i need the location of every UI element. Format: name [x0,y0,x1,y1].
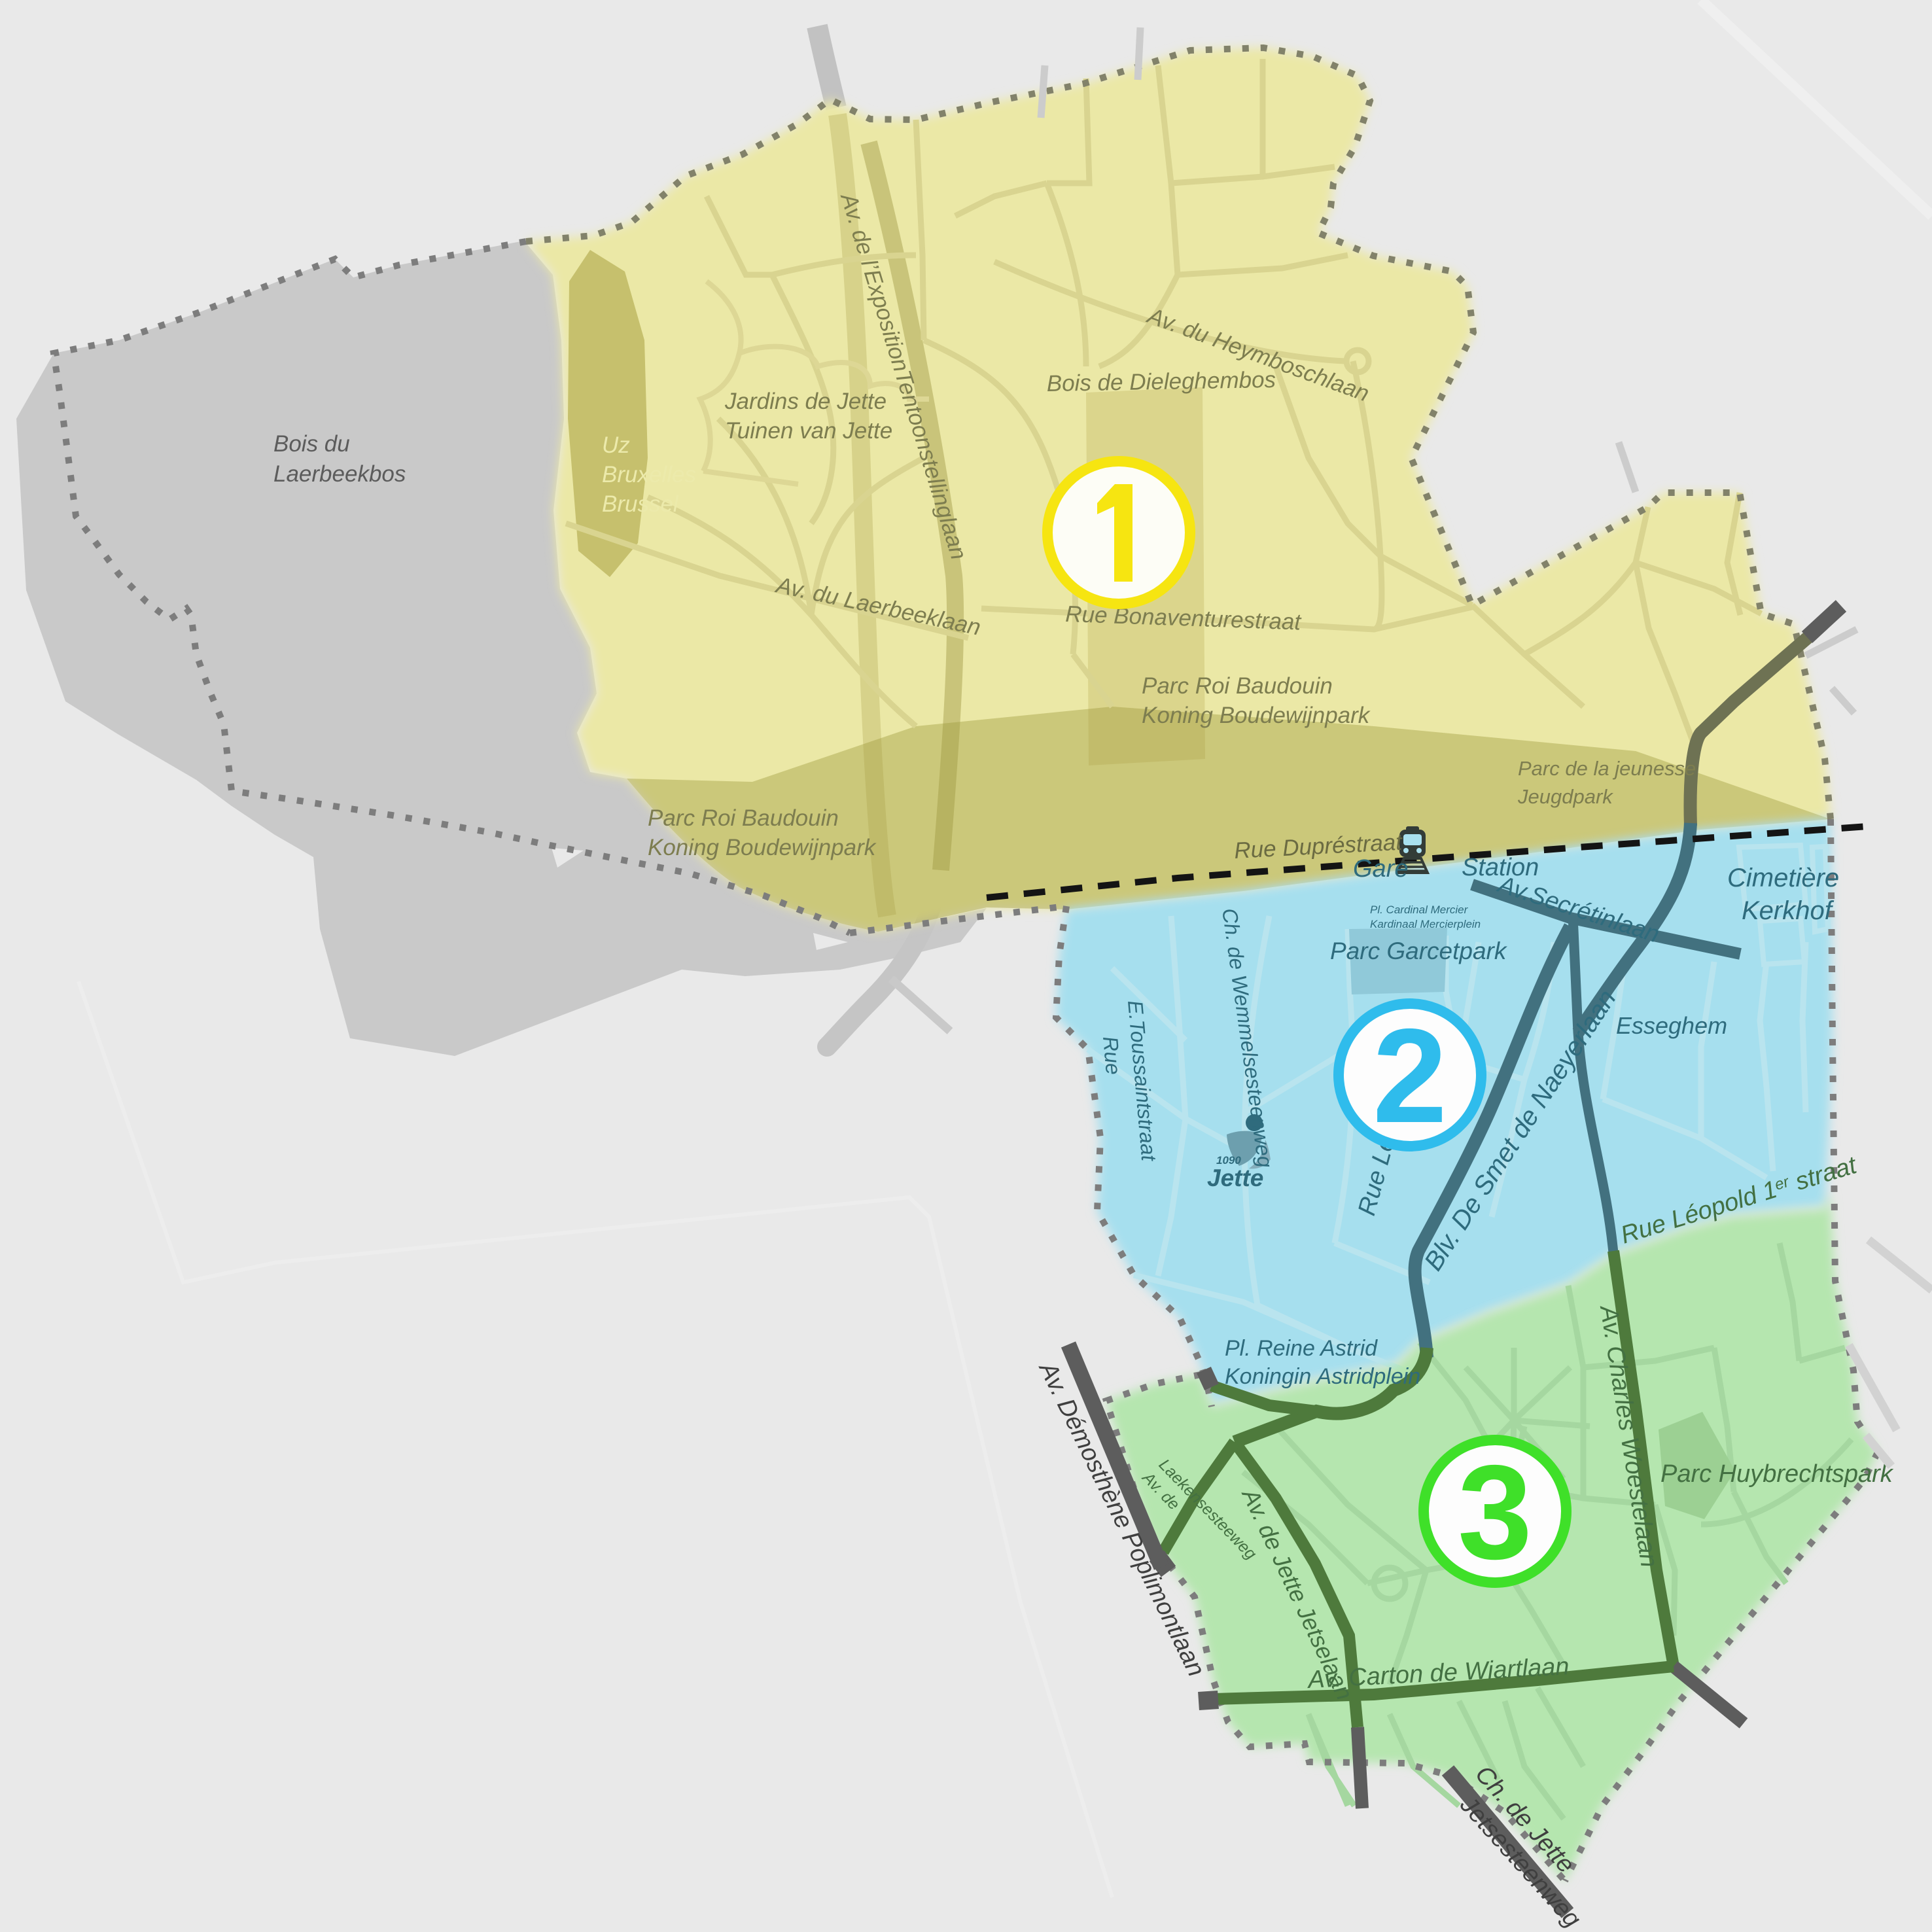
svg-text:Rue: Rue [1098,1035,1125,1076]
svg-text:Parc Huybrechtspark: Parc Huybrechtspark [1660,1460,1894,1488]
svg-text:Brussel: Brussel [602,491,679,517]
svg-text:Cimetière: Cimetière [1727,864,1839,892]
svg-text:Bois du: Bois du [273,431,350,457]
svg-text:Parc de la jeunesse: Parc de la jeunesse [1518,757,1696,780]
svg-text:Kerkhof: Kerkhof [1742,896,1835,925]
svg-text:Koningin Astridplein: Koningin Astridplein [1225,1364,1420,1389]
svg-text:Pl. Reine Astrid: Pl. Reine Astrid [1225,1336,1378,1361]
svg-text:Koning Boudewijnpark: Koning Boudewijnpark [1142,703,1371,728]
svg-text:Laerbeekbos: Laerbeekbos [273,461,406,487]
svg-text:3: 3 [1458,1437,1532,1587]
svg-text:Parc Garcetpark: Parc Garcetpark [1330,938,1508,964]
svg-text:Esseghem: Esseghem [1616,1012,1727,1039]
svg-text:Koning Boudewijnpark: Koning Boudewijnpark [648,835,877,860]
svg-text:Tuinen van Jette: Tuinen van Jette [725,418,892,444]
svg-text:Bois de Dieleghembos: Bois de Dieleghembos [1046,367,1276,396]
svg-text:Bruxelles: Bruxelles [602,462,696,487]
svg-text:Parc Roi Baudouin: Parc Roi Baudouin [648,805,839,831]
svg-text:Gare: Gare [1353,855,1408,883]
svg-text:Jardins de Jette: Jardins de Jette [724,389,887,414]
svg-text:2: 2 [1373,1001,1447,1151]
svg-text:Kardinaal Mercierplein: Kardinaal Mercierplein [1370,918,1481,930]
svg-text:Pl. Cardinal Mercier: Pl. Cardinal Mercier [1370,904,1469,916]
svg-text:Jeugdpark: Jeugdpark [1517,785,1613,808]
svg-text:Uz: Uz [602,432,630,458]
svg-text:Station: Station [1462,854,1539,881]
svg-text:Parc Roi Baudouin: Parc Roi Baudouin [1142,673,1333,699]
